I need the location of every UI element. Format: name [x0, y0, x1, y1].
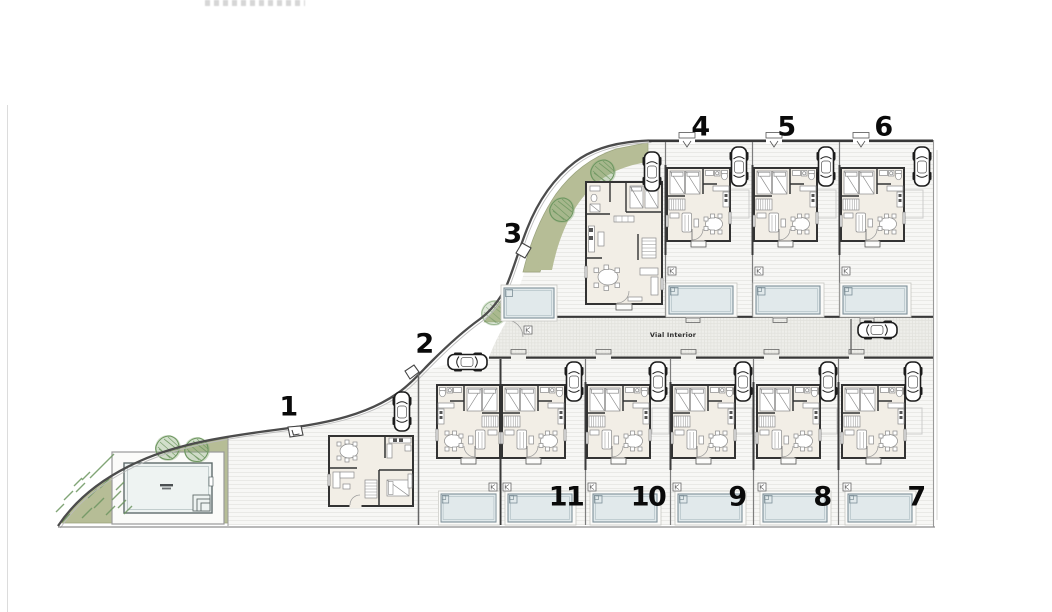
site-plan-canvas: 1234567891011 Vial Interior — [0, 0, 1052, 612]
communal-pool — [112, 452, 224, 524]
site-plan-drawing — [0, 0, 1052, 612]
plot-number-label: 9 — [728, 484, 745, 511]
car-icon-road — [858, 321, 897, 340]
house-plan-plot-2 — [436, 385, 501, 464]
plot-number-label: 5 — [777, 114, 794, 141]
plot-number-label: 3 — [503, 221, 520, 248]
house-plan-plot-10 — [586, 385, 651, 464]
pool-ladder-icon — [209, 477, 213, 486]
private-pool-plot-6 — [840, 283, 911, 317]
house-plan-plot-8 — [756, 385, 821, 464]
house-plan-plot-1 — [328, 436, 413, 508]
private-pool-plot-2 — [438, 491, 499, 525]
plot-number-label: 6 — [874, 114, 891, 141]
plot-number-label: 11 — [549, 484, 584, 511]
house-plan-plot-5 — [753, 168, 818, 247]
road-label: Vial Interior — [650, 331, 696, 339]
plot-number-label: 8 — [813, 484, 830, 511]
house-plan-plot-3 — [585, 182, 663, 310]
private-pool-plot-5 — [753, 283, 824, 317]
plot-number-label: 10 — [631, 484, 666, 511]
car-icon-plot-2 — [448, 353, 487, 372]
car-icon-plot-5 — [817, 147, 836, 186]
house-plan-plot-7 — [841, 385, 906, 464]
plot-number-label: 7 — [907, 484, 924, 511]
plot-number-label: 2 — [415, 331, 432, 358]
plot-number-label: 4 — [691, 114, 708, 141]
car-icon-plot-8 — [819, 362, 838, 401]
car-icon-plot-3 — [643, 152, 662, 191]
house-plan-plot-11 — [501, 385, 566, 464]
private-pool-plot-3 — [501, 285, 557, 321]
car-icon-plot-7 — [904, 362, 923, 401]
private-pool-plot-4 — [666, 283, 737, 317]
car-icon-plot-6 — [913, 147, 932, 186]
plot-number-label: 1 — [279, 394, 296, 421]
private-pool-plot-7 — [845, 491, 916, 525]
car-icon-plot-11 — [565, 362, 584, 401]
car-icon-plot-9 — [734, 362, 753, 401]
car-icon-plot-1 — [393, 392, 412, 431]
pool-steps-icon — [193, 495, 210, 511]
house-plan-plot-6 — [840, 168, 905, 247]
tree-icon — [549, 197, 575, 223]
house-plan-plot-9 — [671, 385, 736, 464]
car-icon-plot-4 — [730, 147, 749, 186]
house-plan-plot-4 — [666, 168, 731, 247]
car-icon-plot-10 — [649, 362, 668, 401]
